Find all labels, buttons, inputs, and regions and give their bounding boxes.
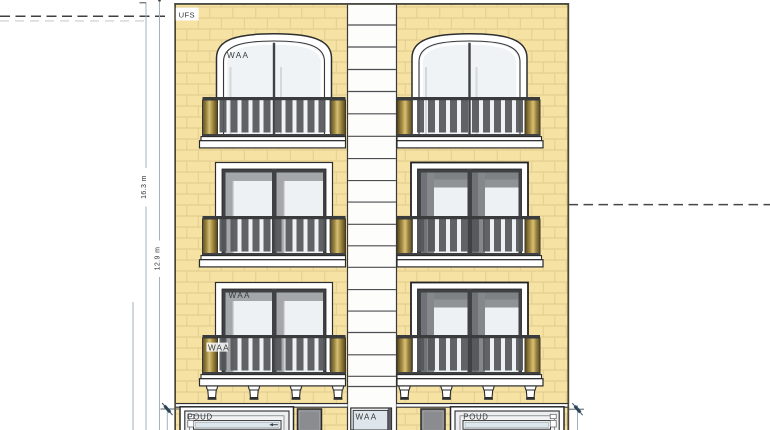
svg-text:WAA: WAA (229, 291, 251, 300)
svg-text:WAA: WAA (227, 51, 249, 60)
svg-text:WAA: WAA (208, 343, 230, 352)
svg-text:POUD: POUD (188, 413, 213, 422)
svg-text:12.9 m: 12.9 m (155, 247, 162, 271)
svg-text:UFS: UFS (179, 10, 195, 19)
svg-text:WAA: WAA (356, 412, 378, 421)
svg-text:POUD: POUD (463, 413, 488, 422)
svg-text:16.3 m: 16.3 m (141, 175, 148, 199)
